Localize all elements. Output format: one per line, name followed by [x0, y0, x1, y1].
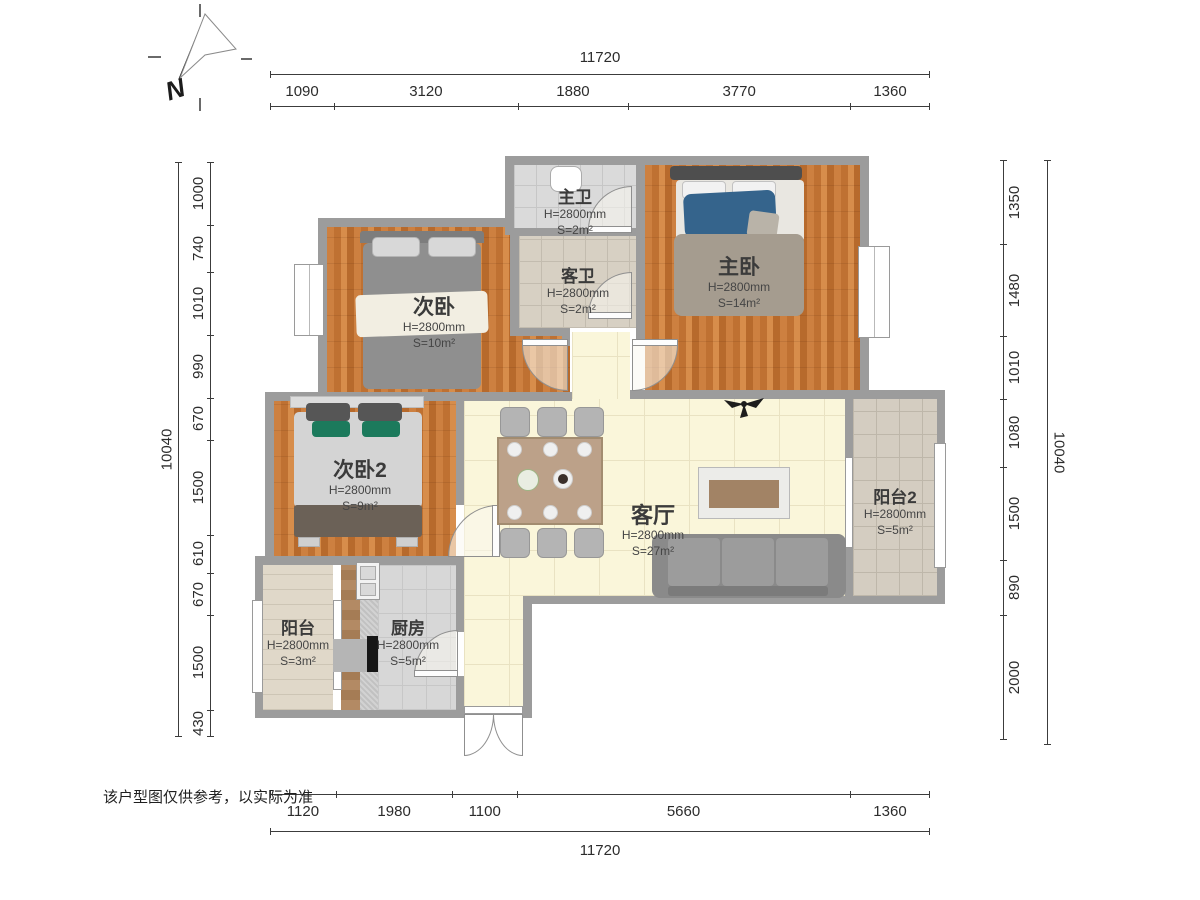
wall-segment — [630, 390, 945, 399]
door-leaf-kitchen — [414, 670, 458, 677]
dim-value: 1980 — [377, 804, 410, 819]
dim-segment: 890 — [1000, 560, 1030, 615]
dim-value: 2000 — [1008, 661, 1023, 694]
wall-segment — [456, 399, 464, 505]
window-master-bedroom — [858, 246, 890, 338]
plate — [507, 442, 522, 457]
dim-value: 3770 — [722, 84, 755, 99]
dim-segment: 610 — [184, 535, 214, 573]
dim-top-total: 11720 — [270, 50, 930, 78]
dim-value: 890 — [1008, 575, 1023, 600]
dining-chair — [574, 407, 604, 437]
dim-value: 1480 — [1008, 274, 1023, 307]
floor-balcony-2 — [853, 398, 937, 596]
dim-segment: 11720 — [270, 50, 930, 78]
balcony-pass-through — [333, 639, 368, 672]
table-flowers — [517, 469, 539, 491]
dining-chair — [537, 407, 567, 437]
ceiling-fan-icon — [722, 392, 766, 420]
dim-segment: 740 — [184, 225, 214, 272]
bed-foot-band — [294, 505, 422, 537]
wall-segment — [505, 156, 869, 165]
sofa-cushion — [668, 538, 720, 586]
window-balcony — [252, 600, 263, 693]
disclaimer-text: 该户型图仅供参考，以实际为准 — [103, 786, 313, 807]
bed-headboard — [670, 166, 802, 180]
bed-cushion-green — [312, 421, 350, 437]
dim-bottom-total: 11720 — [270, 828, 930, 858]
bed-pillow — [428, 237, 476, 257]
window-balcony-2-outer — [934, 443, 946, 568]
dim-segment: 10040 — [152, 162, 182, 737]
wall-segment — [505, 156, 514, 235]
kitchen-sink — [356, 562, 380, 600]
sofa — [652, 534, 846, 598]
dim-segment: 11720 — [270, 828, 930, 858]
dim-segment: 1000 — [184, 162, 214, 225]
dim-value: 740 — [192, 236, 207, 261]
wall-segment — [318, 218, 510, 227]
tv-unit — [709, 480, 779, 508]
wall-segment — [845, 399, 853, 457]
dim-value: 10040 — [160, 429, 175, 471]
dim-top-segments: 1090 3120 1880 3770 1360 — [270, 84, 930, 110]
door-leaf-master-bath — [588, 226, 632, 233]
dim-value: 430 — [192, 711, 207, 736]
dim-value: 1100 — [469, 804, 501, 819]
dim-value: 1010 — [1008, 351, 1023, 384]
wall-segment — [510, 228, 519, 335]
bed-cushion-green — [362, 421, 400, 437]
dim-value: 670 — [192, 582, 207, 607]
sofa-cushion — [722, 538, 774, 586]
wall-segment — [265, 392, 274, 565]
dim-value: 1000 — [192, 177, 207, 210]
dim-value: 11720 — [580, 50, 621, 65]
dim-bottom-segments: 1120 1980 1100 5660 1360 — [270, 791, 930, 819]
dim-segment: 1980 — [336, 791, 452, 819]
dim-value: 1010 — [192, 287, 207, 320]
bed-pillow — [306, 403, 350, 421]
dim-value: 3120 — [409, 84, 442, 99]
dim-segment: 1080 — [1000, 399, 1030, 466]
dim-segment: 1010 — [184, 272, 214, 336]
floor-entry-hall — [464, 596, 523, 710]
dim-segment: 1480 — [1000, 244, 1030, 336]
sink-basin — [360, 566, 376, 580]
dining-chair — [500, 528, 530, 558]
wall-segment — [510, 328, 570, 336]
bed-blanket — [355, 291, 488, 338]
bed-pillow — [358, 403, 402, 421]
compass-north-arrow: N — [148, 2, 252, 112]
dim-value: 1360 — [873, 84, 906, 99]
door-leaf-bedroom-2 — [522, 339, 568, 346]
dim-value: 5660 — [667, 804, 700, 819]
entry-door-sill — [464, 706, 523, 714]
bed-pillow — [372, 237, 420, 257]
dim-segment: 1100 — [452, 791, 517, 819]
sofa-cushion — [776, 538, 828, 586]
compass-n-label: N — [162, 72, 190, 107]
dim-segment: 3120 — [334, 84, 518, 110]
dim-right-total: 10040 — [1044, 160, 1074, 745]
door-leaf-guest-bath — [588, 312, 632, 319]
dim-segment: 1880 — [518, 84, 629, 110]
plate — [543, 505, 558, 520]
dim-value: 1360 — [873, 804, 906, 819]
bed-bench-leg — [396, 537, 418, 547]
dim-value: 610 — [192, 541, 207, 566]
door-leaf-master-bedroom — [632, 339, 678, 346]
wall-segment — [456, 392, 572, 401]
wall-segment — [255, 710, 465, 718]
dim-value: 1880 — [556, 84, 589, 99]
bed-bench-leg — [298, 537, 320, 547]
plate — [577, 442, 592, 457]
north-arrow-light-blade — [180, 14, 236, 78]
window-bedroom-2 — [294, 264, 324, 336]
dim-segment: 1350 — [1000, 160, 1030, 244]
dim-value: 1350 — [1008, 185, 1023, 218]
kitchen-stove — [367, 636, 378, 672]
plate — [507, 505, 522, 520]
dim-segment: 1010 — [1000, 336, 1030, 399]
dim-left-segments: 1000 740 1010 990 670 1500 610 670 1500 … — [184, 162, 214, 737]
dim-segment: 1500 — [184, 615, 214, 710]
entry-door-arc-left — [464, 714, 494, 756]
entry-door-arc-right — [493, 714, 523, 756]
dining-chair — [500, 407, 530, 437]
window-mullion — [309, 265, 310, 335]
floor-balcony — [263, 565, 333, 710]
dim-value: 11720 — [580, 843, 621, 858]
dim-value: 670 — [192, 406, 207, 431]
dim-segment: 1360 — [850, 84, 930, 110]
dim-segment: 990 — [184, 335, 214, 397]
dim-segment: 2000 — [1000, 615, 1030, 740]
floor-plan-canvas: N 11720 1090 3120 1880 3770 1360 1120 19… — [0, 0, 1200, 900]
dim-value: 1500 — [192, 471, 207, 504]
dim-segment: 10040 — [1044, 160, 1074, 745]
tv-console — [698, 467, 790, 519]
sofa-backrest — [668, 586, 828, 596]
floor-corridor — [572, 332, 630, 402]
bathroom-basin — [550, 166, 582, 192]
dim-value: 1090 — [285, 84, 318, 99]
plate — [577, 505, 592, 520]
dim-left-total: 10040 — [152, 162, 182, 737]
dim-segment: 1500 — [184, 440, 214, 535]
window-balcony-2-inner — [845, 457, 853, 548]
table-bowl-inner — [558, 474, 568, 484]
sink-basin — [360, 583, 376, 596]
dim-segment: 670 — [184, 398, 214, 440]
plate — [543, 442, 558, 457]
dim-value: 10040 — [1052, 432, 1067, 474]
dim-segment: 670 — [184, 573, 214, 615]
dim-segment: 1500 — [1000, 467, 1030, 560]
dim-segment: 5660 — [517, 791, 850, 819]
dim-value: 1080 — [1008, 416, 1023, 449]
table-bowl — [553, 469, 573, 489]
dining-chair — [537, 528, 567, 558]
wall-segment — [456, 676, 464, 718]
wall-segment — [845, 548, 853, 596]
dim-segment: 1090 — [270, 84, 334, 110]
wall-segment — [636, 156, 645, 344]
dim-value: 1500 — [1008, 497, 1023, 530]
dining-table — [497, 437, 603, 525]
dim-right-segments: 1350 1480 1010 1080 1500 890 2000 — [1000, 160, 1030, 740]
window-mullion — [874, 247, 875, 337]
dim-segment: 1360 — [850, 791, 930, 819]
dim-value: 990 — [192, 354, 207, 379]
dim-segment: 3770 — [628, 84, 850, 110]
wall-segment — [456, 557, 464, 632]
bed-duvet — [674, 234, 804, 316]
dim-value: 1500 — [192, 646, 207, 679]
wall-segment — [523, 604, 532, 718]
dining-chair — [574, 528, 604, 558]
dim-segment: 430 — [184, 710, 214, 737]
